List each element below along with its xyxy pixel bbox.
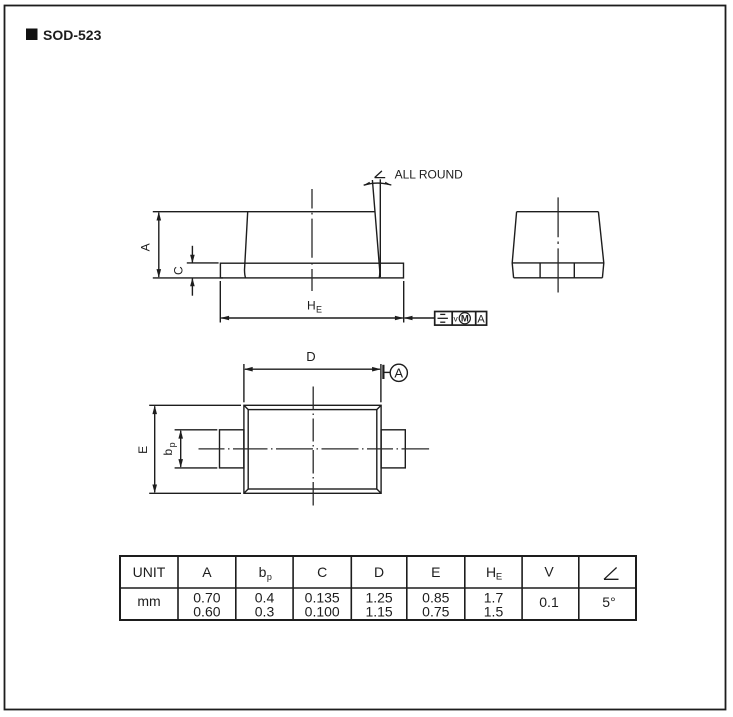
svg-text:D: D	[306, 349, 315, 364]
svg-text:C: C	[171, 266, 185, 275]
svg-text:0.1: 0.1	[539, 594, 559, 610]
svg-text:1.15: 1.15	[365, 604, 392, 620]
svg-text:C: C	[317, 564, 327, 580]
svg-text:0.3: 0.3	[255, 604, 275, 620]
svg-text:V: V	[544, 564, 554, 580]
svg-text:A: A	[139, 243, 153, 251]
svg-text:mm: mm	[137, 593, 160, 609]
svg-text:H: H	[307, 299, 316, 313]
svg-text:E: E	[431, 564, 440, 580]
svg-text:D: D	[374, 564, 384, 580]
svg-text:A: A	[394, 365, 403, 380]
svg-text:p: p	[267, 572, 272, 582]
svg-text:E: E	[136, 446, 150, 454]
svg-text:E: E	[496, 572, 502, 583]
svg-text:p: p	[167, 442, 177, 447]
svg-text:UNIT: UNIT	[133, 564, 166, 580]
svg-text:b: b	[161, 449, 175, 456]
svg-text:1.5: 1.5	[484, 604, 504, 620]
svg-text:A: A	[202, 564, 212, 580]
svg-text:A: A	[477, 313, 485, 325]
svg-text:b: b	[259, 564, 267, 580]
svg-text:M: M	[461, 314, 469, 325]
svg-text:ALL ROUND: ALL ROUND	[395, 168, 464, 182]
svg-text:0.100: 0.100	[305, 604, 340, 620]
svg-text:5°: 5°	[602, 594, 615, 610]
svg-text:0.75: 0.75	[422, 604, 449, 620]
svg-text:SOD-523: SOD-523	[43, 27, 102, 43]
svg-text:H: H	[486, 564, 496, 580]
svg-text:E: E	[316, 304, 322, 314]
svg-text:0.60: 0.60	[193, 604, 220, 620]
